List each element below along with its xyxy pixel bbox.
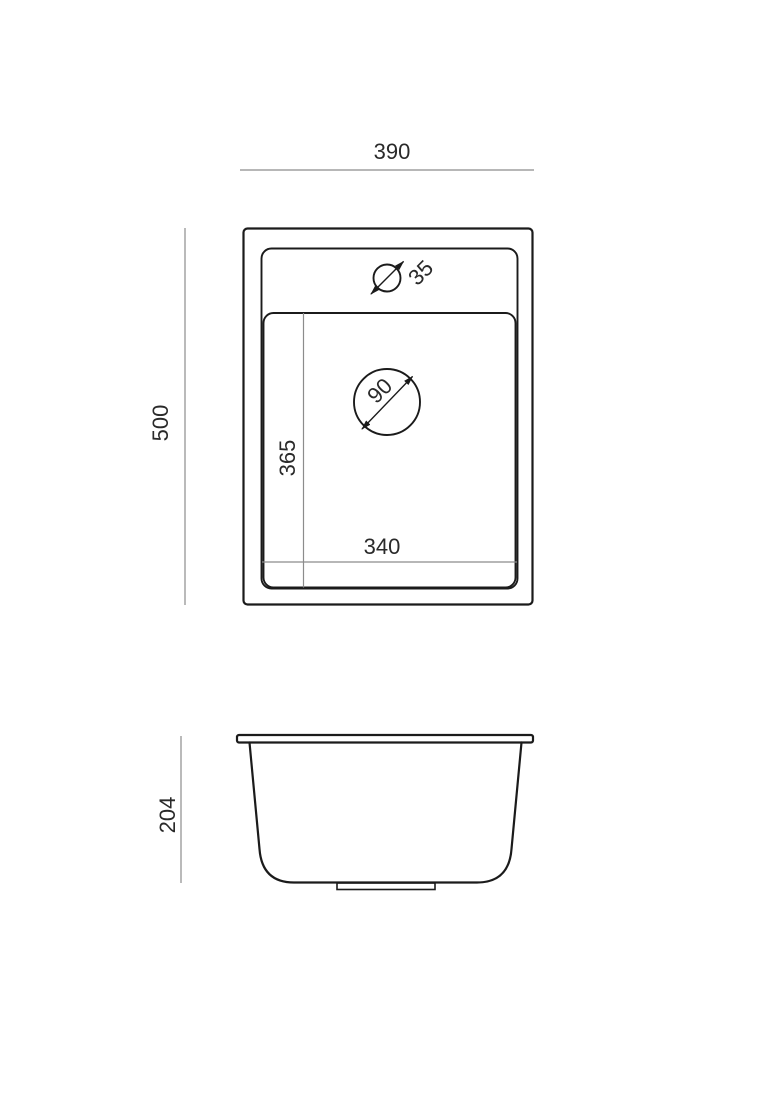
faucet-hole-leader-line xyxy=(371,262,404,295)
dim-label-bowl-len-365: 365 xyxy=(277,440,299,477)
dim-label-bowl-wid-340: 340 xyxy=(364,536,401,558)
front-flange-rect xyxy=(237,735,533,743)
front-drain-lip xyxy=(337,883,435,890)
front-body-profile xyxy=(250,743,522,883)
dim-label-width-390: 390 xyxy=(374,141,411,163)
top-view xyxy=(185,170,534,605)
dim-label-depth-500: 500 xyxy=(150,405,172,442)
dim-label-height-204: 204 xyxy=(157,797,179,834)
front-view xyxy=(181,735,533,890)
sink-technical-drawing: 390 500 35 90 365 340 204 xyxy=(0,0,778,1100)
